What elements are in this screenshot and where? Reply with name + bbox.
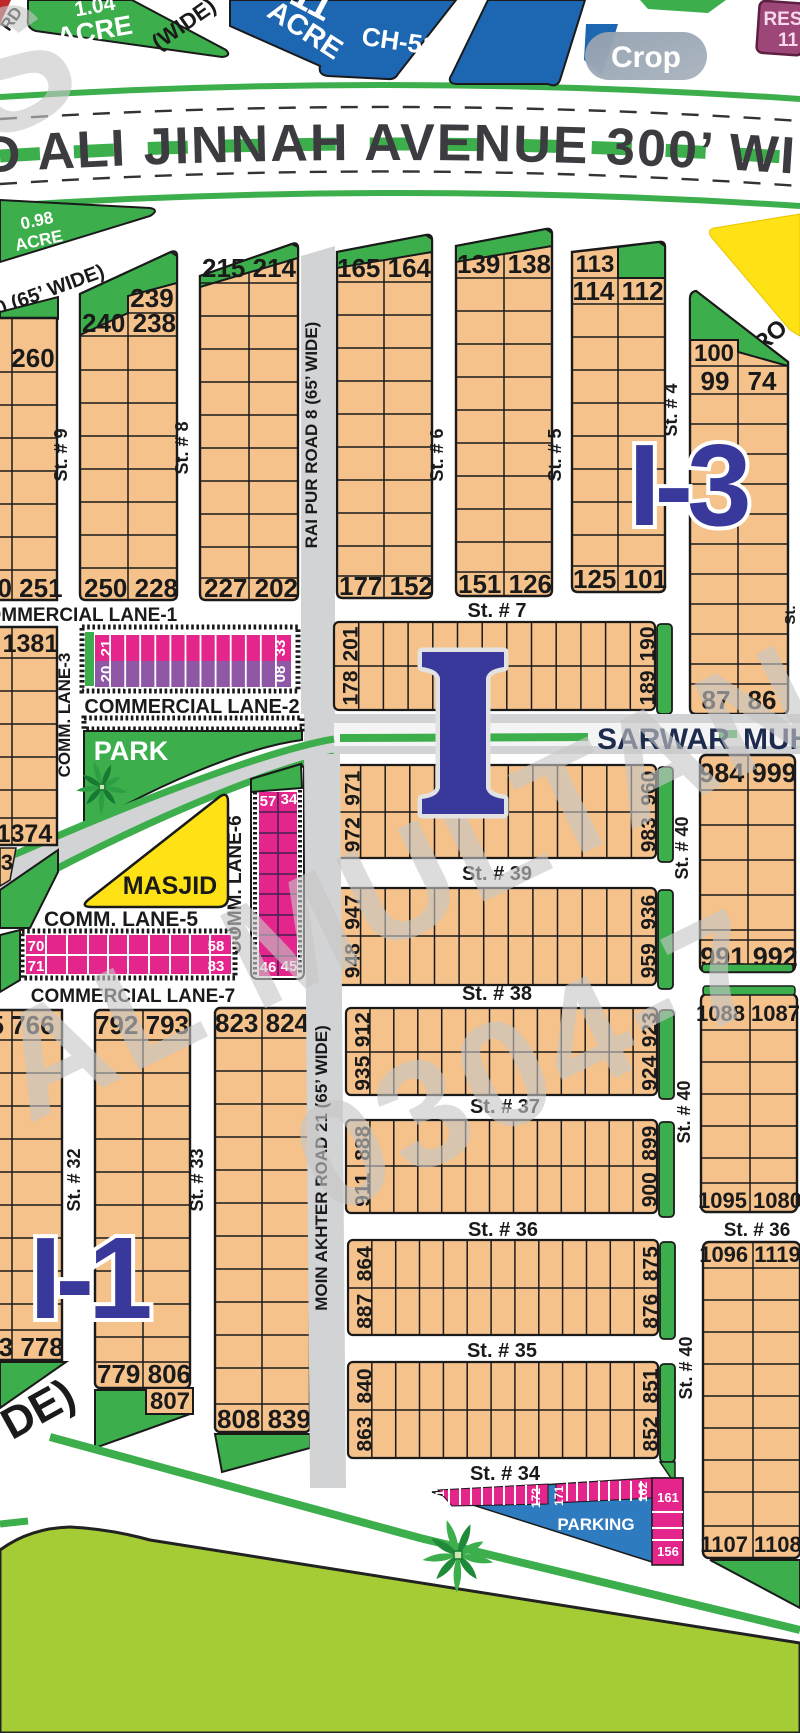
svg-text:779 806: 779 806 bbox=[97, 1359, 191, 1389]
svg-text:172: 172 bbox=[529, 1488, 543, 1508]
svg-text:900: 900 bbox=[639, 1172, 662, 1207]
svg-text:St. # 33: St. # 33 bbox=[187, 1148, 207, 1211]
svg-text:887: 887 bbox=[354, 1294, 377, 1329]
svg-text:240 238: 240 238 bbox=[82, 308, 176, 338]
svg-text:33: 33 bbox=[272, 640, 289, 657]
svg-text:St. # 36: St. # 36 bbox=[468, 1219, 538, 1241]
svg-text:St. # 36: St. # 36 bbox=[724, 1220, 791, 1241]
svg-text:156: 156 bbox=[657, 1544, 679, 1559]
svg-text:PARK: PARK bbox=[94, 736, 169, 766]
svg-text:190: 190 bbox=[637, 626, 660, 661]
svg-text:125 101: 125 101 bbox=[573, 564, 667, 594]
svg-text:912: 912 bbox=[352, 1012, 375, 1047]
svg-text:250 228: 250 228 bbox=[84, 573, 178, 603]
svg-text:St. # 40: St. # 40 bbox=[676, 1336, 696, 1399]
svg-text:St. # 34: St. # 34 bbox=[470, 1463, 541, 1485]
svg-text:5 1381: 5 1381 bbox=[0, 630, 58, 658]
svg-text:3: 3 bbox=[1, 850, 13, 875]
svg-text:74: 74 bbox=[748, 366, 777, 396]
svg-text:1095 1080: 1095 1080 bbox=[698, 1188, 800, 1213]
svg-text:11: 11 bbox=[778, 30, 799, 51]
svg-text:181: 181 bbox=[433, 1490, 447, 1510]
svg-text:St. # 32: St. # 32 bbox=[64, 1148, 84, 1211]
svg-text:178: 178 bbox=[340, 670, 363, 705]
svg-text:St. # 40: St. # 40 bbox=[674, 1080, 694, 1143]
svg-text:260: 260 bbox=[11, 343, 54, 373]
svg-text:201: 201 bbox=[340, 626, 363, 661]
svg-text:171: 171 bbox=[552, 1486, 566, 1506]
svg-text:08: 08 bbox=[272, 666, 289, 683]
svg-text:St.: St. bbox=[782, 605, 799, 624]
svg-text:165 164: 165 164 bbox=[337, 253, 432, 283]
svg-text:851: 851 bbox=[640, 1368, 663, 1403]
svg-text:139 138: 139 138 bbox=[457, 249, 551, 279]
svg-text:162: 162 bbox=[636, 1482, 650, 1502]
svg-text:St. # 5: St. # 5 bbox=[545, 428, 565, 481]
svg-text:215 214: 215 214 bbox=[202, 253, 297, 283]
svg-text:RES: RES bbox=[763, 9, 800, 30]
svg-text:I-1: I-1 bbox=[29, 1213, 150, 1343]
svg-text:2 1374: 2 1374 bbox=[0, 820, 52, 848]
svg-text:840: 840 bbox=[354, 1368, 377, 1403]
svg-text:21: 21 bbox=[98, 640, 115, 657]
svg-text:1107 1108: 1107 1108 bbox=[700, 1532, 800, 1557]
svg-text:808 839: 808 839 bbox=[217, 1404, 311, 1434]
svg-text:876: 876 bbox=[640, 1294, 663, 1329]
svg-text:St. # 35: St. # 35 bbox=[467, 1340, 537, 1362]
svg-text:COMMERCIAL LANE-1: COMMERCIAL LANE-1 bbox=[0, 605, 178, 626]
svg-text:St. # 9: St. # 9 bbox=[51, 428, 71, 481]
svg-text:807: 807 bbox=[150, 1388, 190, 1415]
svg-text:100: 100 bbox=[694, 340, 734, 367]
svg-text:COMMERCIAL LANE-2: COMMERCIAL LANE-2 bbox=[84, 696, 299, 718]
svg-text:57: 57 bbox=[260, 793, 277, 810]
svg-text:113: 113 bbox=[576, 251, 615, 278]
svg-text:114 112: 114 112 bbox=[572, 276, 663, 306]
svg-text:875: 875 bbox=[640, 1246, 663, 1281]
svg-text:99: 99 bbox=[701, 366, 730, 396]
svg-text:St. # 6: St. # 6 bbox=[427, 428, 447, 481]
svg-text:971: 971 bbox=[342, 770, 365, 805]
svg-text:852: 852 bbox=[640, 1416, 663, 1451]
svg-text:20: 20 bbox=[98, 666, 115, 683]
svg-text:34: 34 bbox=[281, 791, 298, 808]
svg-text:1096 1119: 1096 1119 bbox=[699, 1242, 800, 1267]
svg-text:864: 864 bbox=[354, 1246, 377, 1281]
svg-text:227 202: 227 202 bbox=[204, 573, 298, 603]
svg-text:863: 863 bbox=[354, 1416, 377, 1451]
svg-text:RAI PUR ROAD 8 (65’ WIDE): RAI PUR ROAD 8 (65’ WIDE) bbox=[302, 322, 321, 549]
svg-text:151 126: 151 126 bbox=[458, 569, 552, 599]
svg-text:St. # 8: St. # 8 bbox=[172, 421, 192, 474]
svg-text:0 251: 0 251 bbox=[0, 573, 63, 603]
svg-text:70: 70 bbox=[28, 938, 45, 955]
svg-text:PARKING: PARKING bbox=[557, 1515, 634, 1534]
svg-text:Crop: Crop bbox=[611, 41, 681, 74]
svg-text:St. # 7: St. # 7 bbox=[468, 600, 527, 622]
svg-text:161: 161 bbox=[657, 1490, 679, 1505]
svg-text:I-3: I-3 bbox=[628, 420, 748, 550]
svg-text:899: 899 bbox=[639, 1126, 662, 1161]
svg-text:177 152: 177 152 bbox=[339, 571, 433, 601]
